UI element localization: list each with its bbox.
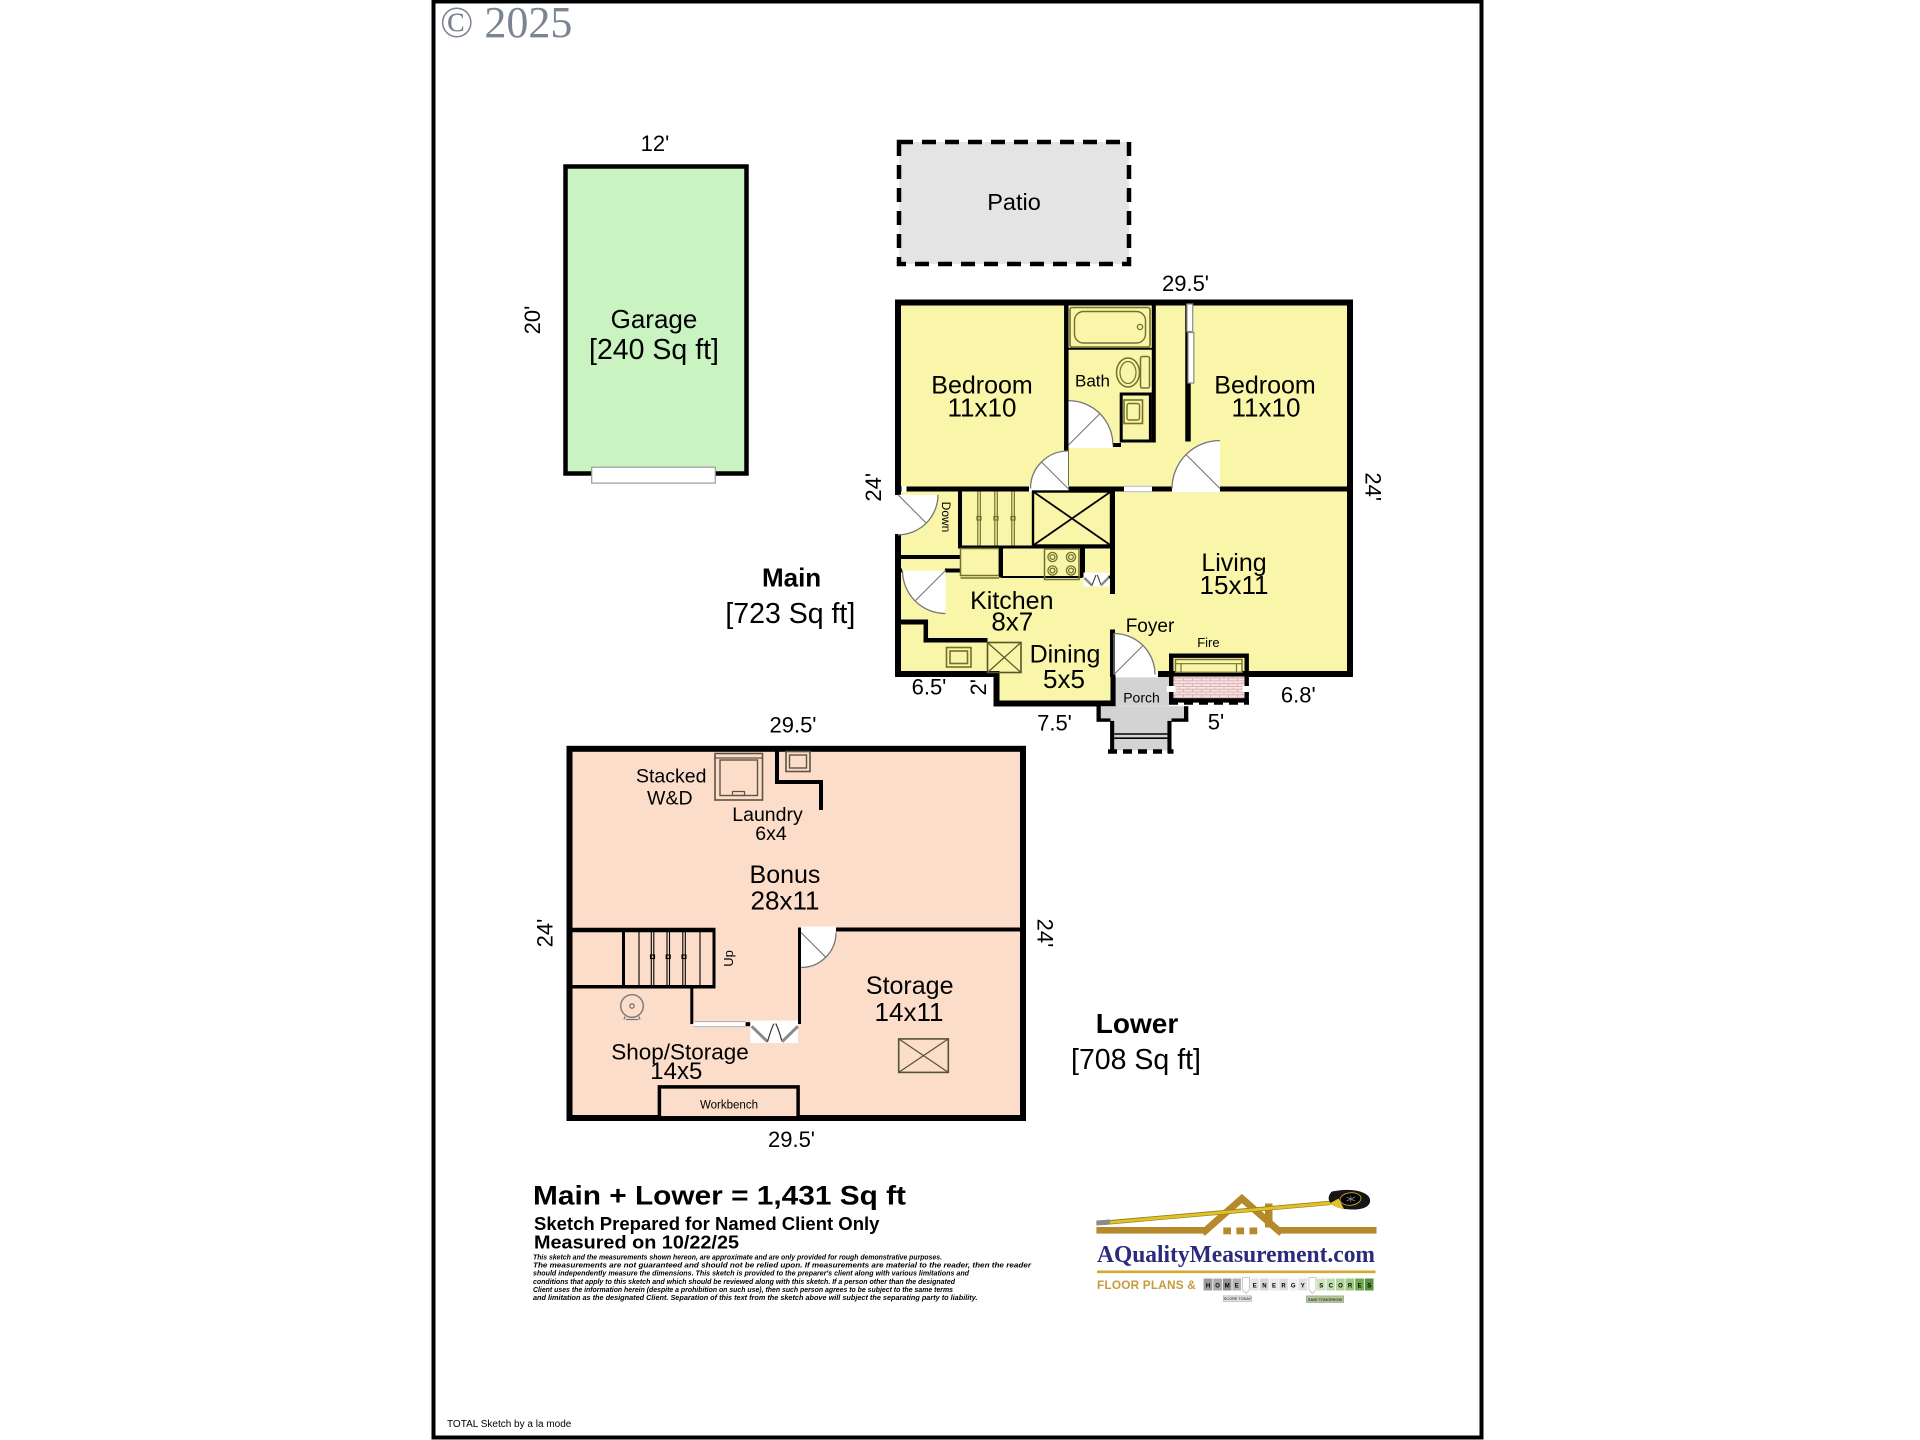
svg-text:SCORE TODAY: SCORE TODAY xyxy=(1224,1297,1252,1301)
svg-text:6.5': 6.5' xyxy=(912,675,947,700)
svg-text:C: C xyxy=(1329,1284,1334,1290)
svg-text:Y: Y xyxy=(1301,1284,1305,1290)
svg-text:Down: Down xyxy=(939,502,953,533)
svg-text:W&D: W&D xyxy=(647,788,693,810)
svg-text:20': 20' xyxy=(520,306,545,335)
svg-text:Foyer: Foyer xyxy=(1126,616,1175,637)
svg-text:Storage: Storage xyxy=(866,972,954,1000)
svg-text:5x5: 5x5 xyxy=(1043,664,1085,694)
svg-text:7.5': 7.5' xyxy=(1037,711,1072,736)
svg-text:12': 12' xyxy=(641,131,670,156)
svg-text:and limitation as the designat: and limitation as the designated Client.… xyxy=(533,1293,978,1302)
svg-text:Fire: Fire xyxy=(1197,635,1219,650)
svg-text:14x5: 14x5 xyxy=(650,1058,702,1085)
svg-text:11x10: 11x10 xyxy=(1232,393,1301,423)
svg-text:H: H xyxy=(1206,1284,1210,1290)
svg-text:Patio: Patio xyxy=(987,189,1041,215)
svg-text:29.5': 29.5' xyxy=(769,713,816,738)
svg-text:5': 5' xyxy=(1208,710,1224,735)
svg-text:29.5': 29.5' xyxy=(768,1127,815,1152)
svg-text:Lower: Lower xyxy=(1096,1008,1179,1039)
svg-text:E: E xyxy=(1235,1284,1239,1290)
svg-text:R: R xyxy=(1281,1284,1286,1290)
svg-text:11x10: 11x10 xyxy=(948,393,1017,423)
svg-text:E: E xyxy=(1272,1284,1276,1290)
svg-text:8x7: 8x7 xyxy=(991,607,1033,637)
svg-text:SAVE TOMORROW: SAVE TOMORROW xyxy=(1308,1298,1343,1302)
svg-text:[723 Sq ft]: [723 Sq ft] xyxy=(725,598,855,630)
svg-text:M: M xyxy=(1225,1284,1230,1290)
svg-text:Bath: Bath xyxy=(1075,372,1110,391)
svg-text:[708 Sq ft]: [708 Sq ft] xyxy=(1071,1044,1201,1076)
svg-text:24': 24' xyxy=(533,919,558,948)
svg-text:15x11: 15x11 xyxy=(1200,570,1269,600)
svg-text:Up: Up xyxy=(721,950,736,967)
svg-text:2': 2' xyxy=(966,679,991,695)
svg-text:24': 24' xyxy=(1360,472,1385,501)
svg-text:28x11: 28x11 xyxy=(751,886,820,916)
svg-text:Main: Main xyxy=(762,563,821,593)
svg-text:S: S xyxy=(1367,1284,1371,1290)
svg-text:24': 24' xyxy=(1033,919,1058,948)
svg-text:O: O xyxy=(1215,1284,1220,1290)
svg-text:29.5': 29.5' xyxy=(1162,271,1209,296)
svg-text:N: N xyxy=(1262,1284,1266,1290)
svg-text:AQualityMeasurement.com: AQualityMeasurement.com xyxy=(1097,1241,1375,1268)
svg-text:14x11: 14x11 xyxy=(875,997,944,1027)
svg-text:© 2025: © 2025 xyxy=(440,0,572,47)
svg-text:6x4: 6x4 xyxy=(755,823,787,845)
svg-text:TOTAL Sketch by a la mode: TOTAL Sketch by a la mode xyxy=(447,1419,572,1430)
svg-text:Stacked: Stacked xyxy=(636,766,706,788)
svg-text:6.8': 6.8' xyxy=(1281,683,1316,708)
svg-text:O: O xyxy=(1338,1284,1343,1290)
svg-text:E: E xyxy=(1358,1284,1362,1290)
svg-text:24': 24' xyxy=(861,473,886,502)
svg-text:Measured on 10/22/25: Measured on 10/22/25 xyxy=(534,1232,739,1253)
svg-text:FLOOR PLANS &: FLOOR PLANS & xyxy=(1097,1278,1196,1292)
svg-text:Main + Lower = 1,431 Sq ft: Main + Lower = 1,431 Sq ft xyxy=(533,1181,906,1211)
svg-text:Porch: Porch xyxy=(1123,690,1160,706)
svg-text:Workbench: Workbench xyxy=(700,1100,758,1112)
svg-text:R: R xyxy=(1348,1284,1353,1290)
svg-text:G: G xyxy=(1291,1284,1296,1290)
svg-text:Garage: Garage xyxy=(611,304,698,334)
svg-text:E: E xyxy=(1253,1284,1257,1290)
svg-text:S: S xyxy=(1319,1284,1323,1290)
svg-text:[240 Sq ft]: [240 Sq ft] xyxy=(589,334,719,366)
